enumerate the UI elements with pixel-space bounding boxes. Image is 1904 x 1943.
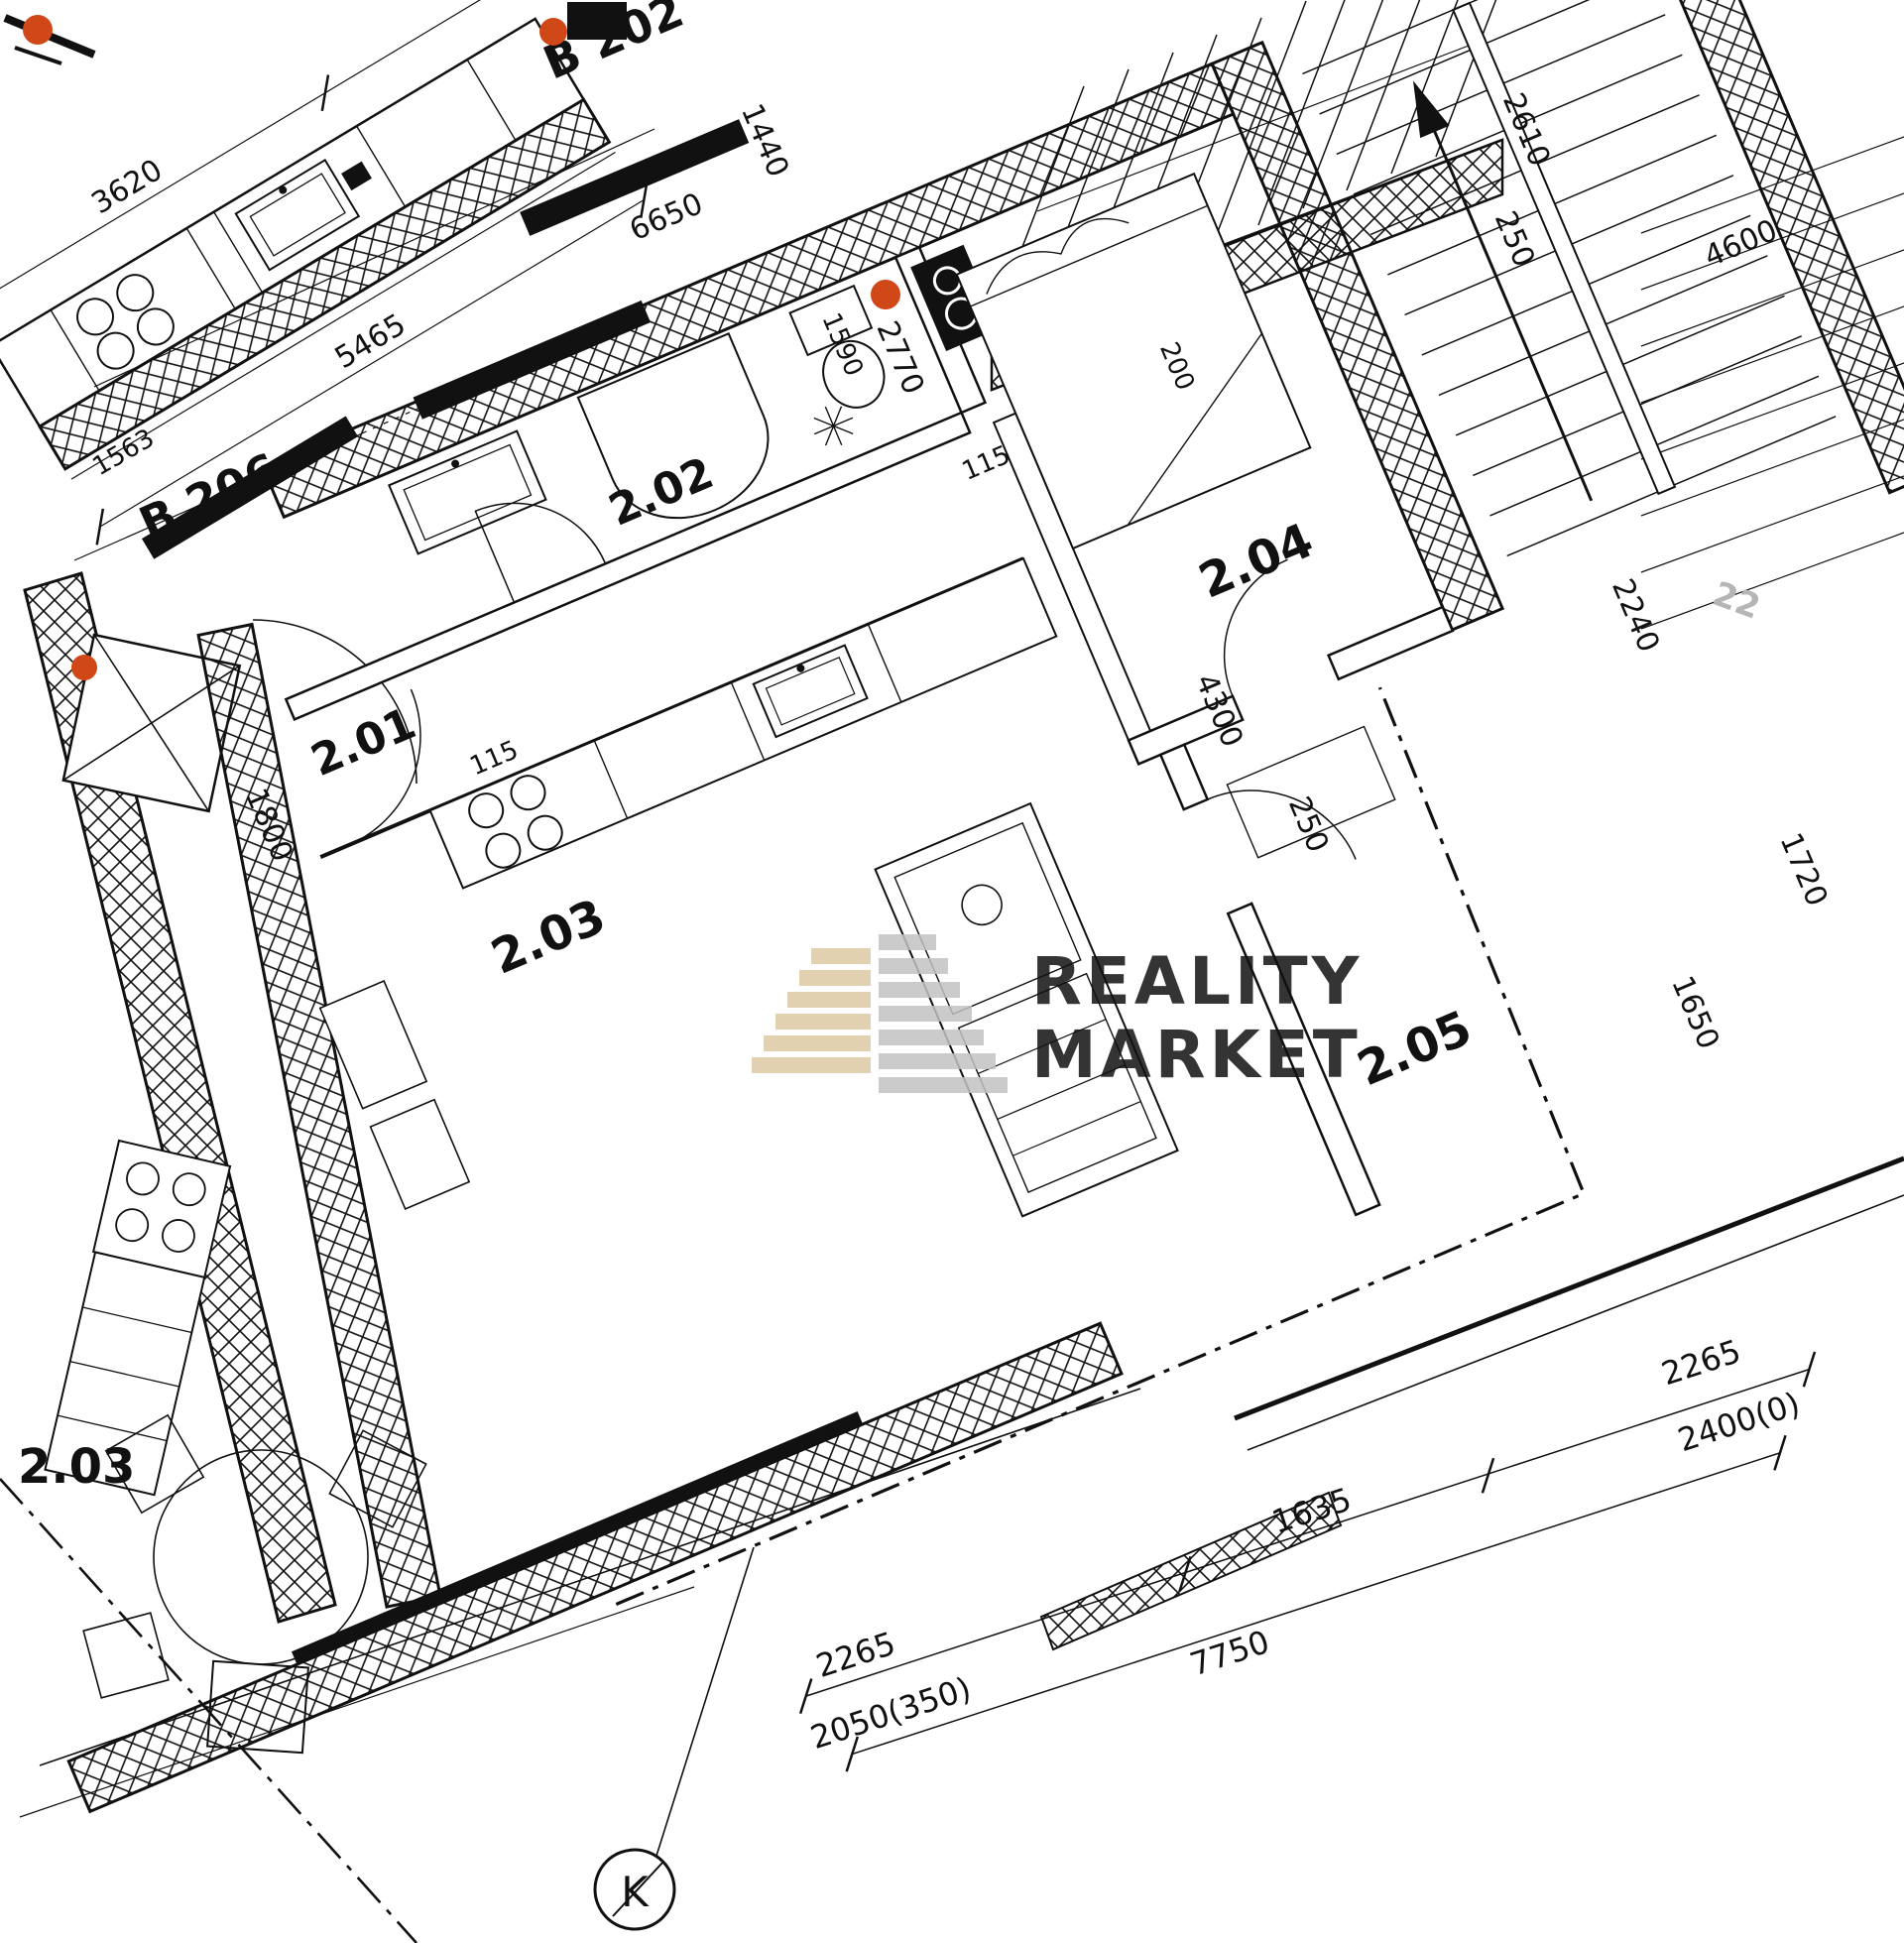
chair [83,1613,169,1698]
room-label-2-03-neighbor: 2.03 [18,1439,135,1495]
cabinet [371,1100,470,1209]
watermark-line2: MARKET [1031,1017,1362,1093]
wall-204-bottom [1329,607,1453,679]
dim-2400-0: 2400(0) [1673,1385,1804,1459]
dim-250a: 250 [1487,206,1542,272]
red-marker-dot [871,280,900,309]
room-label-2-05: 2.05 [1350,1000,1480,1097]
watermark-line1: REALITY [1031,943,1363,1020]
dim-6650: 6650 [625,186,708,248]
unit-label-b202: B 202 [535,0,691,90]
floor-plan-page: 3620 5465 [0,0,1904,1943]
floor-plan-drawing: 3620 5465 [0,0,1904,1943]
door-arc [1208,755,1356,903]
stair-floor-note: 22 [1708,574,1765,628]
dim-2265a: 2265 [811,1625,899,1685]
dim-1720: 1720 [1773,828,1835,911]
room-label-2-04: 2.04 [1191,513,1321,610]
stair-up-arrow [1398,74,1449,138]
edge-line [1235,1158,1904,1418]
wall-hatched-small [1041,1493,1341,1649]
unit-label-b206: B 206 [132,442,287,550]
bottom-dimension-chain: 2265 2050(350) 1635 7750 2265 2400(0) [778,1243,1851,1858]
dim-2240: 2240 [1605,574,1666,658]
bed [957,174,1311,548]
room-label-2-01: 2.01 [304,698,423,787]
dim-4600: 4600 [1700,213,1783,275]
dim-1650: 1650 [1664,971,1725,1054]
red-marker-dot [539,18,567,46]
red-marker-dot [23,15,53,45]
dim-2050-350: 2050(350) [806,1669,976,1757]
watermark: REALITY MARKET [752,934,1363,1093]
dim-3620: 3620 [86,153,169,221]
dim-250b: 250 [1281,791,1336,857]
property-line-dashdot [0,1479,416,1943]
dim-2265b: 2265 [1657,1332,1745,1393]
dim-5465: 5465 [329,307,412,376]
room-label-2-03: 2.03 [484,889,614,986]
red-marker-dot [71,655,97,680]
wall-203-205 [1160,745,1207,809]
section-marker-label: K [621,1868,650,1916]
edge-line [1248,1195,1904,1450]
